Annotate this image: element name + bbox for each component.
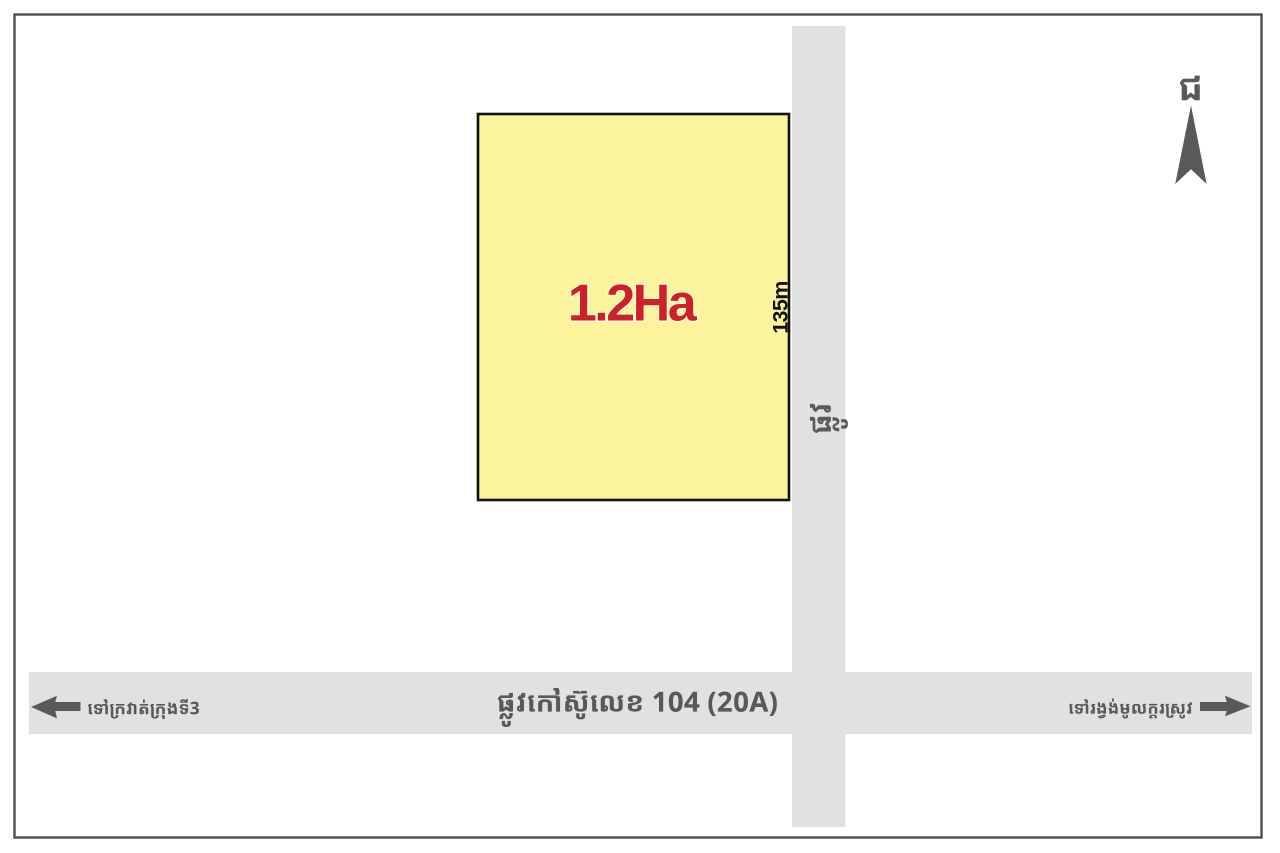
svg-text:135m: 135m xyxy=(769,281,793,334)
svg-text:1.2Ha: 1.2Ha xyxy=(568,275,698,333)
